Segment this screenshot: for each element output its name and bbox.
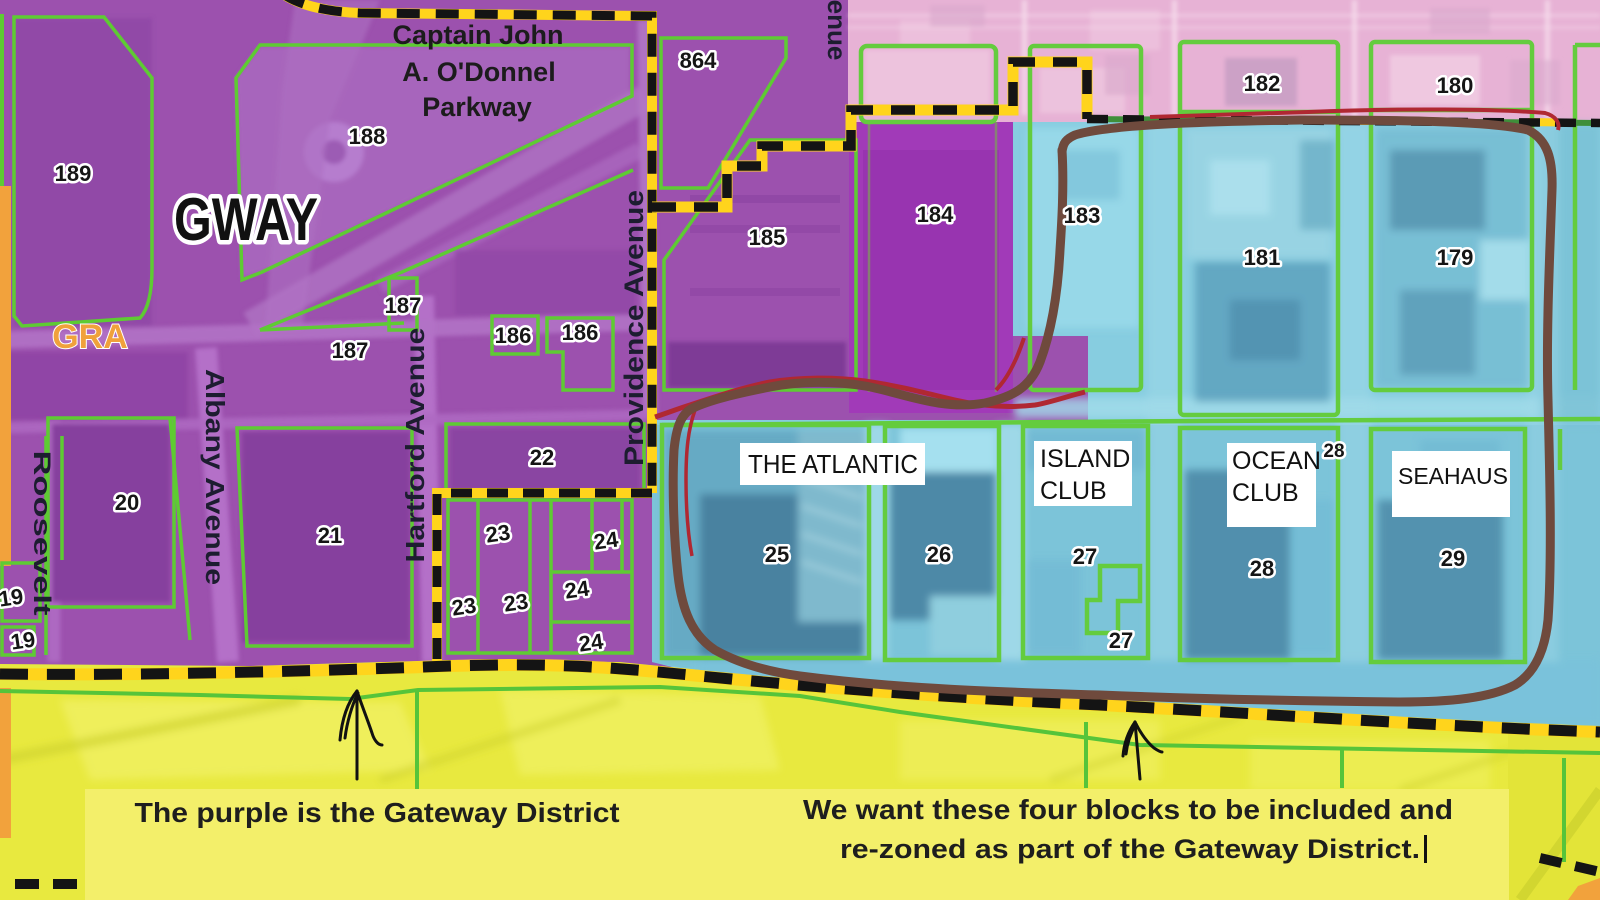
svg-text:19: 19 [0, 583, 25, 611]
svg-text:Albany Avenue: Albany Avenue [200, 369, 230, 585]
svg-text:CLUB: CLUB [1232, 479, 1299, 507]
svg-text:Roosevelt: Roosevelt [28, 451, 55, 616]
svg-text:180: 180 [1437, 73, 1474, 98]
svg-text:Hartford Avenue: Hartford Avenue [400, 328, 430, 563]
svg-text:CLUB: CLUB [1040, 477, 1107, 505]
svg-text:19: 19 [9, 626, 37, 654]
svg-text:189: 189 [55, 161, 92, 186]
svg-text:27: 27 [1109, 628, 1133, 653]
svg-text:28: 28 [1250, 556, 1274, 581]
svg-text:864: 864 [680, 48, 717, 73]
svg-text:23: 23 [502, 588, 530, 616]
svg-text:21: 21 [318, 523, 342, 548]
svg-text:185: 185 [749, 225, 786, 250]
svg-text:26: 26 [927, 542, 951, 567]
svg-text:186: 186 [562, 320, 599, 345]
svg-text:24: 24 [592, 526, 620, 554]
svg-text:The purple is the Gateway Dist: The purple is the Gateway District [135, 797, 620, 828]
svg-text:24: 24 [563, 575, 591, 603]
svg-text:22: 22 [530, 445, 554, 470]
svg-text:20: 20 [115, 490, 139, 515]
svg-text:A. O'Donnel: A. O'Donnel [402, 57, 555, 87]
svg-text:GRA: GRA [52, 318, 128, 356]
svg-text:ISLAND: ISLAND [1040, 445, 1130, 473]
svg-text:Captain John: Captain John [392, 20, 563, 50]
svg-text:27: 27 [1073, 544, 1097, 569]
svg-text:186: 186 [495, 323, 532, 348]
svg-text:We want these four blocks to b: We want these four blocks to be included… [803, 794, 1453, 825]
svg-text:188: 188 [349, 124, 386, 149]
svg-text:SEAHAUS: SEAHAUS [1398, 463, 1508, 489]
svg-text:187: 187 [332, 338, 369, 363]
svg-text:28: 28 [1323, 441, 1344, 462]
svg-text:182: 182 [1244, 71, 1281, 96]
svg-text:Providence Avenue: Providence Avenue [619, 190, 649, 466]
svg-text:179: 179 [1437, 245, 1474, 270]
svg-text:THE ATLANTIC: THE ATLANTIC [748, 449, 918, 479]
svg-text:183: 183 [1064, 203, 1101, 228]
svg-text:25: 25 [765, 542, 789, 567]
svg-text:23: 23 [484, 519, 512, 547]
svg-text:Parkway: Parkway [422, 92, 532, 122]
svg-text:GWAY: GWAY [174, 186, 318, 253]
svg-text:29: 29 [1441, 546, 1465, 571]
svg-text:OCEAN: OCEAN [1232, 447, 1321, 475]
svg-text:181: 181 [1244, 245, 1281, 270]
svg-text:enue: enue [822, 0, 852, 60]
svg-text:re-zoned as part of the Gatewa: re-zoned as part of the Gateway District… [840, 834, 1420, 864]
svg-text:23: 23 [450, 592, 478, 620]
svg-text:24: 24 [577, 628, 605, 656]
svg-text:187: 187 [385, 293, 422, 318]
svg-text:184: 184 [917, 202, 954, 227]
